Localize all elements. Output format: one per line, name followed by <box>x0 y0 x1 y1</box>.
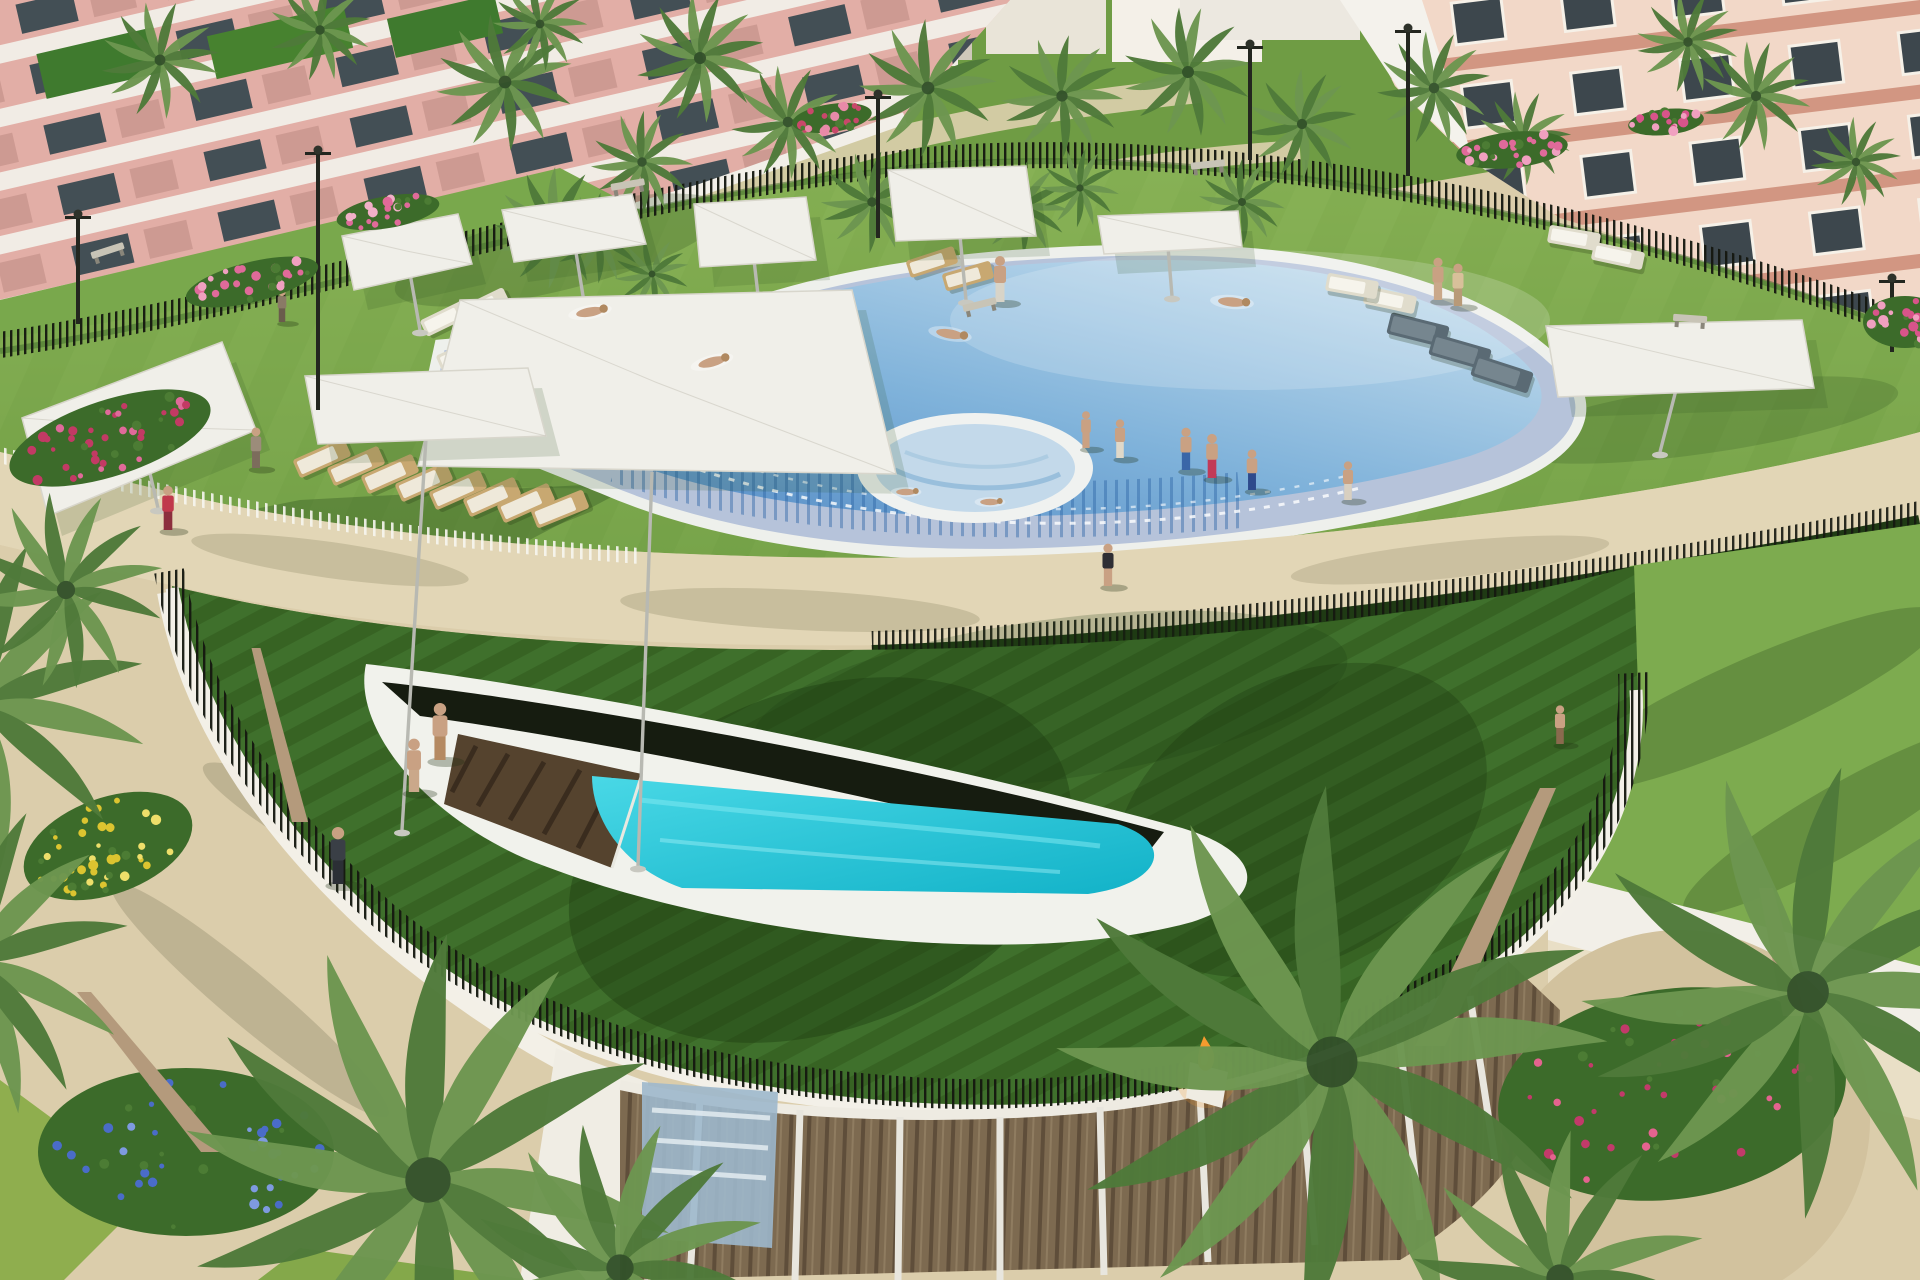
flower <box>140 1169 149 1178</box>
person-legs <box>1082 431 1089 448</box>
person-legs <box>252 450 260 468</box>
person-legs <box>1116 440 1124 458</box>
umbrella-canopy <box>1098 211 1242 254</box>
swimmer <box>975 497 1006 507</box>
person-legs <box>164 510 173 530</box>
person-head <box>1556 705 1564 713</box>
person-torso <box>331 839 346 860</box>
bench-leg <box>1219 166 1224 172</box>
flower <box>1873 309 1880 316</box>
person-head <box>1207 434 1217 444</box>
person-legs <box>1248 472 1256 490</box>
person-legs <box>279 307 285 322</box>
aerial-render: Resort pool complex — aerial architectur… <box>0 0 1920 1280</box>
umbrella-canopy <box>1546 320 1814 397</box>
flower <box>82 1166 89 1173</box>
lamp-head <box>74 210 83 219</box>
flower <box>220 1081 227 1088</box>
person-legs <box>434 734 445 760</box>
flower <box>272 1119 282 1129</box>
person-torso <box>407 750 421 770</box>
lamp-head <box>1404 24 1413 33</box>
flower <box>267 1184 274 1191</box>
person-head <box>1248 450 1257 459</box>
person-head <box>434 703 446 715</box>
person-shadow <box>325 881 362 891</box>
person-legs <box>1104 567 1112 586</box>
flower <box>125 1104 132 1111</box>
flower <box>171 1224 176 1229</box>
person-head <box>1082 411 1090 419</box>
umbrella-base <box>412 330 428 337</box>
lamp-pole <box>316 148 320 410</box>
swimmer-body <box>980 499 1000 505</box>
flower <box>247 1127 252 1132</box>
person-head <box>1344 461 1352 469</box>
person-legs <box>1454 287 1462 306</box>
person-head <box>163 486 173 496</box>
person-legs <box>409 768 419 792</box>
flower <box>118 1193 125 1200</box>
swimmer-head <box>913 488 919 494</box>
person-torso <box>278 296 287 308</box>
umbrella-base <box>630 866 646 873</box>
person-torso <box>1115 428 1125 442</box>
person-torso <box>994 266 1006 283</box>
person-legs <box>1344 482 1352 500</box>
flower <box>1908 321 1918 331</box>
person-torso <box>1180 437 1191 453</box>
flower <box>99 1159 109 1169</box>
person-torso <box>1555 714 1565 728</box>
person-head <box>408 739 420 751</box>
umbrella-base <box>1164 296 1180 303</box>
swimmer-body <box>896 489 916 495</box>
flower <box>119 1147 127 1155</box>
bench-leg <box>1674 321 1678 327</box>
person-head <box>332 827 344 839</box>
flower <box>152 1130 158 1136</box>
lamp-pole <box>76 212 80 324</box>
flower <box>140 1161 149 1170</box>
person-legs <box>996 281 1005 302</box>
lamp-head <box>874 90 883 99</box>
flower <box>127 1123 135 1131</box>
flower <box>149 1102 154 1107</box>
person-legs <box>1434 281 1442 300</box>
flower <box>148 1178 158 1188</box>
lamp-pole <box>876 92 880 238</box>
lamp-head <box>314 146 323 155</box>
flower <box>159 1163 164 1168</box>
lamp-pole <box>1248 42 1252 160</box>
flower <box>279 1128 284 1133</box>
person-torso <box>1343 470 1353 484</box>
flower <box>1888 310 1893 315</box>
flower <box>1867 319 1876 328</box>
person-torso <box>251 436 262 451</box>
person-head <box>1453 264 1462 273</box>
flower <box>159 1152 164 1157</box>
flower <box>1877 301 1885 309</box>
umbrella-base <box>1652 452 1668 459</box>
bench-leg <box>1193 169 1198 175</box>
person-torso <box>433 715 448 736</box>
person-head <box>1103 544 1112 553</box>
lamp-head <box>1888 274 1897 283</box>
swimmer-head <box>997 498 1003 504</box>
swimmer <box>891 487 922 497</box>
person-torso <box>1432 267 1443 283</box>
flower <box>1913 314 1919 320</box>
flower <box>1902 308 1911 317</box>
flower <box>135 1180 143 1188</box>
lamp-head <box>1246 40 1255 49</box>
person-head <box>252 428 261 437</box>
scene-canvas <box>0 0 1920 1280</box>
person-legs <box>1182 451 1190 470</box>
person-torso <box>1081 419 1091 433</box>
person-head <box>1181 428 1190 437</box>
person-legs <box>1208 458 1217 478</box>
person-torso <box>162 495 174 511</box>
flower <box>103 1123 113 1133</box>
person-shadow <box>427 757 464 767</box>
flower <box>1878 315 1888 325</box>
flower <box>275 1201 283 1209</box>
flower <box>249 1199 259 1209</box>
person-legs <box>332 858 343 884</box>
person-head <box>1433 258 1442 267</box>
flower <box>67 1151 76 1160</box>
person-head <box>1116 419 1124 427</box>
person-torso <box>1206 443 1218 459</box>
person-torso <box>1247 458 1258 473</box>
person-legs <box>1556 726 1564 744</box>
person-torso <box>1452 273 1463 289</box>
person-head <box>995 256 1005 266</box>
flower <box>198 1164 208 1174</box>
person-shadow <box>403 789 438 798</box>
flower <box>52 1141 62 1151</box>
flower <box>251 1185 258 1192</box>
flower <box>263 1206 270 1213</box>
bench-leg <box>1700 323 1704 329</box>
flower <box>257 1128 266 1137</box>
umbrella-base <box>394 830 410 837</box>
lamp-pole <box>1406 26 1410 176</box>
flower <box>1913 298 1919 304</box>
person-torso <box>1102 553 1113 569</box>
flower <box>1900 328 1909 337</box>
